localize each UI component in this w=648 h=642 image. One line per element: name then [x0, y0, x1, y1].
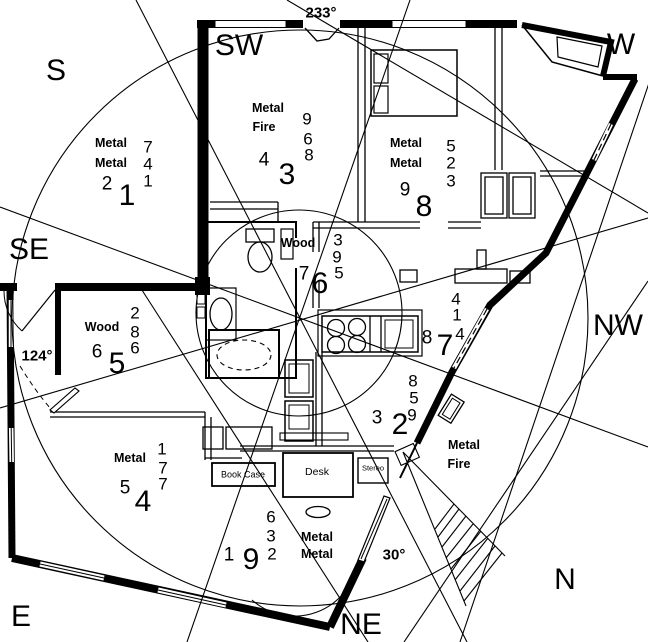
stairs [395, 444, 505, 606]
balcony [522, 25, 611, 76]
bathtub-inner [217, 340, 271, 370]
shelf [203, 427, 223, 449]
bathtub [209, 330, 279, 378]
bed [371, 50, 457, 116]
entry-door [4, 290, 79, 413]
floorplan-drawing [0, 0, 648, 642]
furniture [203, 394, 464, 517]
ne-door [252, 496, 390, 616]
stove-burners [328, 319, 366, 354]
sink [210, 298, 232, 330]
inner-compass-circle [196, 210, 402, 416]
desk-label: Desk [305, 467, 329, 478]
oval-table [306, 507, 330, 518]
pillow [374, 86, 388, 113]
bathroom [197, 222, 296, 378]
interior-walls [50, 28, 586, 464]
sector-line [460, 80, 648, 642]
sector-line [404, 281, 648, 642]
stereo-label: Stereo [362, 464, 384, 472]
nw-closet [400, 250, 530, 283]
book-case-label: Book Case [221, 471, 265, 480]
sector-lines [0, 0, 648, 642]
bath-shelf [281, 229, 293, 259]
sector-line [287, 0, 648, 213]
bedroom-closets [481, 173, 535, 218]
fengshui-floorplan: Book Case Desk Stereo SSWWSENWENEN233°12… [0, 0, 648, 642]
